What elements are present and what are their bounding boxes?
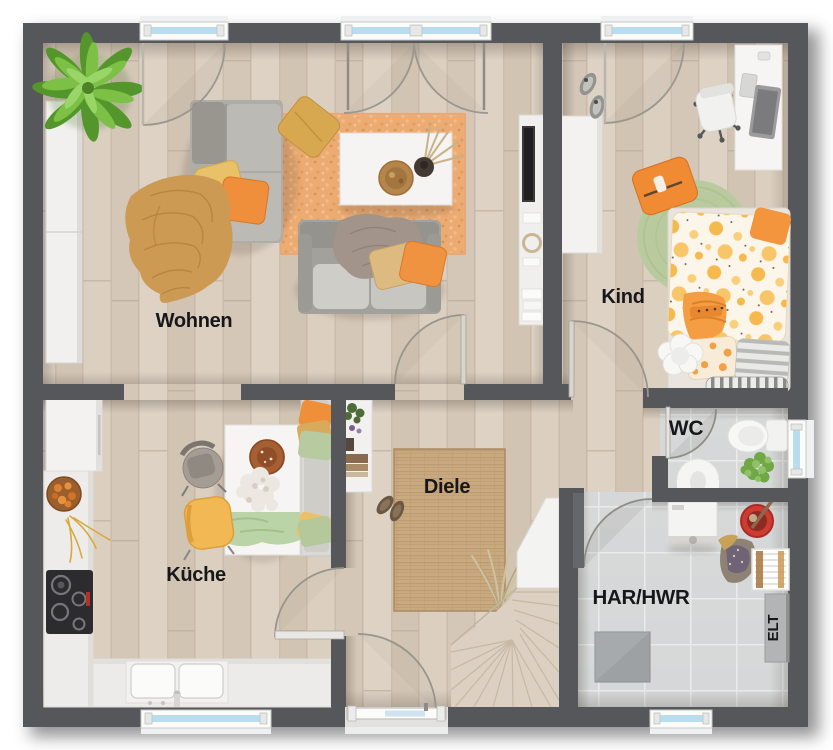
svg-text:Diele: Diele bbox=[424, 476, 470, 498]
svg-text:WC: WC bbox=[669, 417, 704, 440]
svg-text:Wohnen: Wohnen bbox=[156, 310, 233, 332]
svg-text:Kind: Kind bbox=[601, 286, 644, 308]
svg-text:HAR/HWR: HAR/HWR bbox=[593, 586, 690, 609]
svg-text:ELT: ELT bbox=[765, 615, 782, 642]
svg-text:Küche: Küche bbox=[166, 564, 226, 586]
